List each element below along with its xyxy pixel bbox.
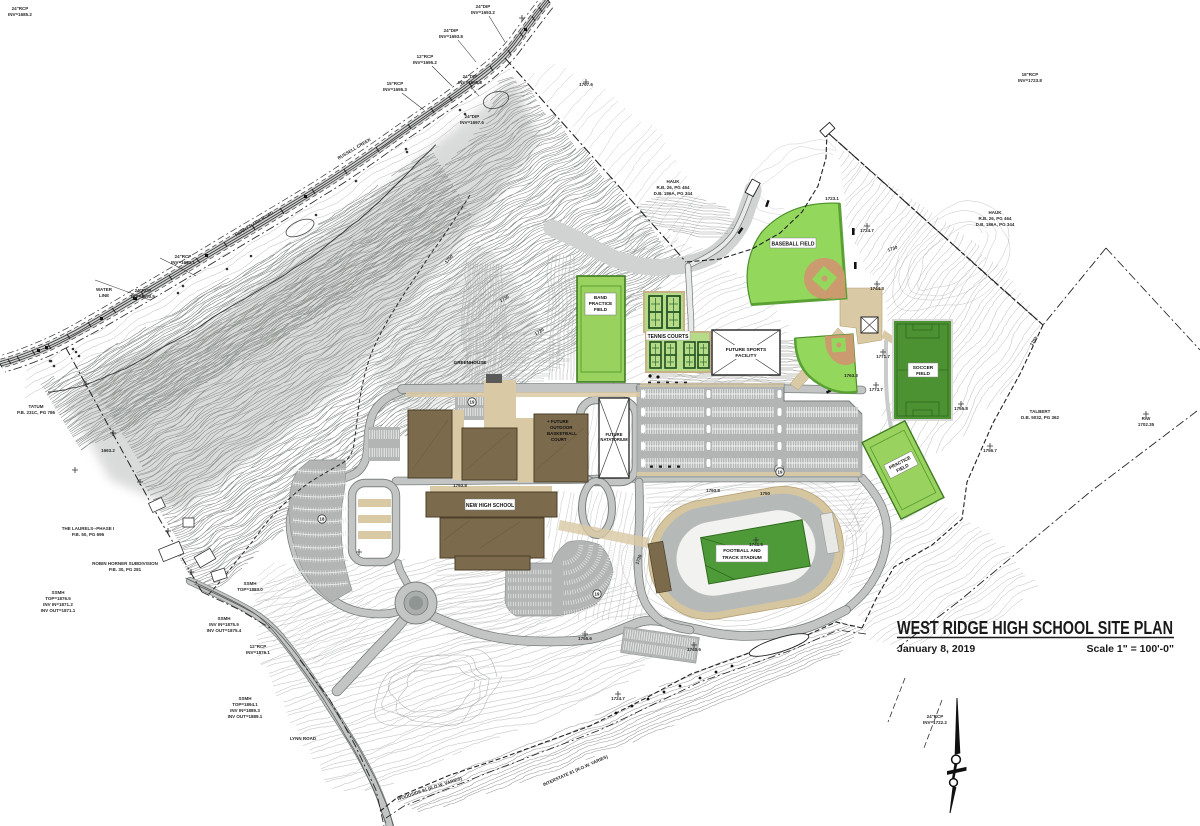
- svg-text:D.B. 186A, PG 344: D.B. 186A, PG 344: [654, 191, 693, 196]
- svg-text:FIELD: FIELD: [594, 307, 608, 312]
- svg-text:24"DIP: 24"DIP: [476, 4, 491, 9]
- svg-text:19: 19: [778, 470, 783, 475]
- svg-text:FUTURE SPORTS: FUTURE SPORTS: [726, 347, 767, 353]
- svg-text:1663.2: 1663.2: [101, 448, 115, 453]
- svg-text:FOOTBALL AND: FOOTBALL AND: [723, 548, 761, 554]
- svg-text:Scale 1" = 100'-0": Scale 1" = 100'-0": [1087, 643, 1174, 655]
- svg-text:24"DIP: 24"DIP: [465, 114, 480, 119]
- svg-text:INV=1693.8: INV=1693.8: [439, 34, 463, 39]
- svg-text:TOP=1876.5: TOP=1876.5: [45, 596, 71, 601]
- svg-text:ROBIN HORNER SUBDIVISION: ROBIN HORNER SUBDIVISION: [92, 561, 158, 566]
- svg-text:19: 19: [595, 592, 600, 597]
- svg-text:24"DIP: 24"DIP: [444, 28, 459, 33]
- svg-text:1793.8: 1793.8: [706, 488, 720, 493]
- svg-text:INV IN=1871.2: INV IN=1871.2: [43, 602, 73, 607]
- svg-text:24"RCP: 24"RCP: [12, 6, 29, 11]
- svg-text:24"RCP: 24"RCP: [927, 714, 944, 719]
- svg-text:24"RCP: 24"RCP: [135, 288, 152, 293]
- svg-text:1750: 1750: [760, 491, 771, 496]
- svg-text:P.B. 231C, PG 786: P.B. 231C, PG 786: [17, 410, 55, 415]
- svg-text:INV=1695.2: INV=1695.2: [413, 60, 437, 65]
- svg-text:19: 19: [470, 400, 475, 405]
- svg-text:INV=1695.3: INV=1695.3: [383, 87, 407, 92]
- svg-text:SSMH: SSMH: [217, 616, 230, 621]
- svg-text:TOP=1883.0: TOP=1883.0: [237, 587, 263, 592]
- svg-text:GREENHOUSE: GREENHOUSE: [454, 360, 487, 365]
- svg-text:TRACK STADIUM: TRACK STADIUM: [722, 555, 762, 561]
- svg-text:SOCCER: SOCCER: [913, 365, 934, 371]
- svg-text:SSMH: SSMH: [243, 581, 256, 586]
- svg-text:24"DIP: 24"DIP: [463, 74, 478, 79]
- svg-text:BASKETBALL: BASKETBALL: [547, 431, 577, 436]
- svg-text:LYNN ROAD: LYNN ROAD: [290, 736, 317, 741]
- svg-text:INV IN=1889.3: INV IN=1889.3: [230, 708, 260, 713]
- svg-text:SSMH: SSMH: [51, 590, 64, 595]
- svg-text:THE LAURELS--PHASE I: THE LAURELS--PHASE I: [62, 526, 115, 531]
- svg-text:FACILITY: FACILITY: [735, 353, 757, 359]
- svg-text:INV=1695.6: INV=1695.6: [458, 80, 482, 85]
- svg-text:BAND: BAND: [594, 295, 608, 300]
- svg-text:INV=1693.2: INV=1693.2: [471, 10, 495, 15]
- svg-text:SSMH: SSMH: [238, 696, 251, 701]
- svg-text:TOP=1894.1: TOP=1894.1: [232, 702, 258, 707]
- svg-text:INV IN=1875.5: INV IN=1875.5: [209, 622, 239, 627]
- svg-text:NATATORIUM: NATATORIUM: [600, 437, 628, 442]
- svg-text:D.B. 186A, PG 344: D.B. 186A, PG 344: [976, 222, 1015, 227]
- svg-text:LINE: LINE: [99, 293, 109, 298]
- svg-text:INV=1722.2: INV=1722.2: [923, 720, 947, 725]
- svg-text:INV OUT=1875.4: INV OUT=1875.4: [207, 628, 242, 633]
- svg-text:1763.3: 1763.3: [844, 373, 858, 378]
- svg-text:12"RCP: 12"RCP: [250, 644, 267, 649]
- svg-text:+ FUTURE: + FUTURE: [547, 419, 569, 424]
- svg-text:INV OUT=1889.1: INV OUT=1889.1: [228, 714, 263, 719]
- svg-text:24"RCP: 24"RCP: [175, 254, 192, 259]
- svg-text:INV=1697.6: INV=1697.6: [460, 120, 484, 125]
- svg-text:WATER: WATER: [96, 287, 113, 292]
- svg-text:INV=1692.1: INV=1692.1: [171, 260, 195, 265]
- svg-text:WEST RIDGE HIGH SCHOOL SITE PL: WEST RIDGE HIGH SCHOOL SITE PLAN: [897, 617, 1173, 638]
- svg-text:TATUM: TATUM: [28, 404, 43, 409]
- svg-text:INV=1876.1: INV=1876.1: [246, 650, 270, 655]
- svg-text:18"RCP: 18"RCP: [1022, 72, 1039, 77]
- svg-text:1793.8: 1793.8: [453, 483, 467, 488]
- svg-text:INV=1685.2: INV=1685.2: [8, 12, 32, 17]
- svg-text:R.B. 26, PG 464: R.B. 26, PG 464: [978, 216, 1012, 221]
- svg-text:INV=1690.5: INV=1690.5: [131, 294, 155, 299]
- svg-text:INV=1723.8: INV=1723.8: [1018, 78, 1042, 83]
- svg-text:NEW HIGH SCHOOL: NEW HIGH SCHOOL: [466, 503, 514, 509]
- svg-text:R.B. 26, PG 464: R.B. 26, PG 464: [656, 185, 690, 190]
- svg-text:HAUK: HAUK: [667, 179, 681, 184]
- svg-text:18: 18: [320, 517, 325, 522]
- svg-text:15"RCP: 15"RCP: [387, 81, 404, 86]
- svg-text:INV OUT=1871.1: INV OUT=1871.1: [41, 608, 76, 613]
- svg-text:TALBERT: TALBERT: [1030, 409, 1051, 414]
- svg-text:OUTDOOR: OUTDOOR: [550, 425, 573, 430]
- svg-text:D.B. 5032, PG 362: D.B. 5032, PG 362: [1021, 415, 1060, 420]
- svg-text:PRACTICE: PRACTICE: [589, 301, 612, 306]
- svg-text:HAUK: HAUK: [989, 210, 1003, 215]
- svg-text:1723.1: 1723.1: [825, 196, 839, 201]
- svg-text:FIELD: FIELD: [916, 371, 930, 377]
- svg-text:January 8, 2019: January 8, 2019: [897, 643, 975, 655]
- svg-text:P.B. 30, PG 281: P.B. 30, PG 281: [109, 567, 142, 572]
- svg-text:COURT: COURT: [551, 437, 567, 442]
- svg-text:12"RCP: 12"RCP: [417, 54, 434, 59]
- svg-text:BASEBALL FIELD: BASEBALL FIELD: [772, 242, 815, 248]
- svg-text:TENNIS COURTS: TENNIS COURTS: [648, 334, 690, 340]
- svg-text:1702.35: 1702.35: [1138, 422, 1155, 427]
- svg-text:P.B. 50, PG 696: P.B. 50, PG 696: [72, 532, 105, 537]
